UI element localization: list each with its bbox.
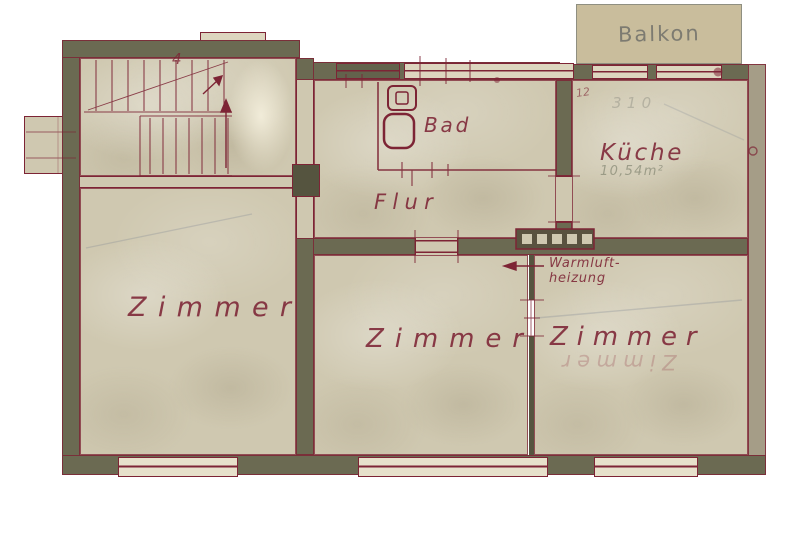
window-bottom-middle <box>358 457 548 477</box>
room-flur <box>314 80 556 238</box>
label-bad: Bad <box>424 113 471 137</box>
label-stair-mark: 4 <box>172 50 182 68</box>
door-flur-zimmer <box>415 238 458 255</box>
wall-stairhall-zimmer <box>80 176 296 188</box>
window-top-kueche-1 <box>592 65 648 79</box>
wall-flur-kueche <box>556 80 572 176</box>
wall-left <box>62 40 80 475</box>
door-flur-kueche <box>556 176 572 222</box>
wall-middle-right-zimmer-upper <box>529 255 534 300</box>
label-heating-line1: Warmluft- <box>549 256 620 271</box>
wall-right <box>748 64 766 475</box>
label-zimmer-left: Zimmer <box>128 292 302 323</box>
window-top-kueche-2 <box>656 65 722 79</box>
scan-light-patch <box>228 60 294 172</box>
chimney-block <box>292 164 320 197</box>
balcony-label: Balkon <box>617 21 700 46</box>
wall-flur-kueche-lower <box>556 222 572 239</box>
floor-plan: Balkon <box>0 0 800 533</box>
wall-flur-rooms <box>296 238 748 255</box>
label-ghost-zimmer: Zimmer <box>556 350 677 374</box>
label-zimmer-right: Zimmer <box>550 322 705 352</box>
label-heating-line2: heizung <box>549 271 606 286</box>
partition-stair-flur-lower <box>296 197 314 238</box>
label-kueche-area-faint: 10,54m² <box>600 164 664 179</box>
room-zimmer-middle <box>314 255 528 455</box>
label-zimmer-middle: Zimmer <box>366 324 534 354</box>
window-top-1 <box>336 63 400 79</box>
window-bottom-left <box>118 457 238 477</box>
label-flur: Flur <box>374 190 439 214</box>
window-bottom-right <box>594 457 698 477</box>
balcony-area: Balkon <box>576 4 742 64</box>
label-kueche-pencil-faint: 310 <box>612 94 656 112</box>
partition-stair-flur <box>296 80 314 164</box>
label-kueche-dim-mark: 12 <box>575 85 591 100</box>
wall-left-middle-zimmer <box>296 238 314 455</box>
window-top-2 <box>404 63 574 79</box>
label-kueche: Küche <box>600 140 684 166</box>
wall-stair-flur-top <box>296 58 314 80</box>
